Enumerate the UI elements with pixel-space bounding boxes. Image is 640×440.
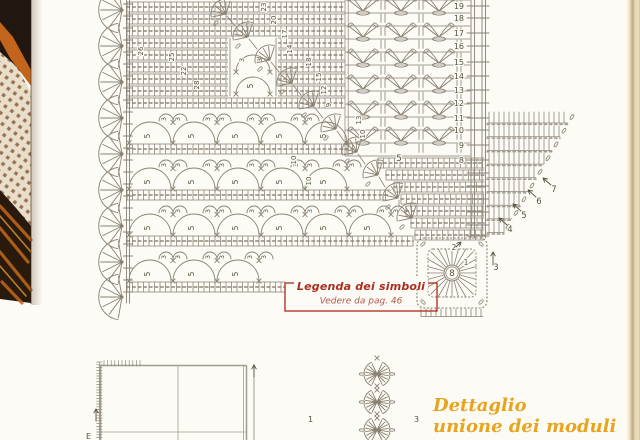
photo-shadow [32, 0, 43, 305]
arc-5 [349, 214, 391, 235]
arc-5-count: 5 [187, 271, 196, 276]
arc-3-count: 3 [204, 163, 212, 167]
row-number: 19 [454, 2, 464, 11]
round-arrow-number: 4 [507, 225, 512, 235]
arc-5 [129, 122, 171, 143]
chain-oval [385, 126, 391, 131]
arc-3-count: 3 [292, 209, 300, 213]
detail-caption-line1: Dettaglio [432, 395, 527, 416]
v-stitch [426, 0, 452, 11]
round-number: 2 [452, 243, 457, 252]
row-count-number: 22 [180, 67, 188, 76]
arc-3-count: 3 [292, 117, 300, 121]
row-count-number: 10 [359, 130, 367, 139]
arc-5-count: 5 [187, 179, 196, 184]
photo-strip [0, 0, 43, 305]
arc-3-count: 3 [336, 209, 344, 213]
fan-pivot [120, 224, 123, 227]
row-number: 10 [454, 126, 464, 135]
fan-pivot [120, 295, 123, 298]
arc-5-count: 5 [275, 225, 284, 230]
arc-5 [173, 168, 215, 189]
round-arrow-number: 7 [551, 185, 556, 195]
arc-3-count: 3 [378, 209, 386, 213]
chain-oval [529, 183, 534, 189]
row-count-number: 10 [290, 156, 298, 165]
chain-oval [373, 48, 379, 53]
module-label-1: 1 [308, 415, 313, 424]
arc-5-count: 5 [143, 225, 152, 230]
arc-5 [217, 214, 259, 235]
comb-row [487, 112, 568, 123]
row-number: 17 [454, 29, 464, 38]
chain-oval [423, 100, 429, 105]
chain-oval [373, 74, 379, 79]
crochet-chart: 3355555533333333555553333333333555555333… [99, 0, 575, 320]
module-leaf [377, 362, 390, 374]
chain-oval [569, 114, 574, 120]
page-edge [626, 0, 640, 440]
comb-row [487, 181, 528, 192]
fan-pivot [120, 80, 123, 83]
arc-3-count: 3 [246, 255, 254, 259]
fan-pivot [120, 188, 123, 191]
arc-5 [129, 214, 171, 235]
row-number: 18 [454, 14, 464, 23]
arc-3-count: 3 [160, 117, 168, 121]
row-number: 8 [459, 156, 464, 165]
chain-oval [449, 22, 455, 27]
chain-oval [553, 141, 558, 147]
row-count-number: 20 [270, 16, 278, 25]
x-stitch [375, 412, 379, 416]
round-number: 1 [464, 258, 469, 267]
row-count-number: 26 [137, 46, 145, 55]
arc-3-count: 3 [204, 117, 212, 121]
chain-oval [513, 210, 518, 216]
row-count-number: 9 [325, 103, 333, 107]
chain-oval [411, 74, 417, 79]
fan-pivot [120, 8, 123, 11]
row-count-number: 12 [320, 86, 328, 95]
arc-3-count: 3 [160, 209, 168, 213]
arc-5-count: 5 [319, 179, 328, 184]
arc-5 [217, 260, 259, 281]
chain-oval [561, 128, 566, 134]
arc-5 [129, 168, 171, 189]
arc-5-count: 5 [231, 179, 240, 184]
chain-oval [411, 48, 417, 53]
chain-oval [359, 373, 365, 375]
chain-oval [213, 20, 219, 26]
chain-oval [423, 48, 429, 53]
comb-row [487, 208, 512, 219]
chain-oval [373, 22, 379, 27]
arc-5-count: 5 [246, 83, 255, 88]
arc-5 [261, 214, 303, 235]
arc-5-count: 5 [319, 225, 328, 230]
comb-row [487, 194, 520, 205]
arc-5-count: 5 [187, 225, 196, 230]
module-leaf [377, 430, 390, 440]
chain-oval [373, 126, 379, 131]
staircase-rail [337, 131, 344, 141]
round-arrow-number: 5 [521, 211, 526, 221]
legend-title: Legenda dei simboli [297, 280, 425, 293]
arc-3-count: 3 [334, 163, 342, 167]
fan-pivot [120, 116, 123, 119]
legend-box: Legenda dei simboli Vedere da pag. 46 [285, 278, 437, 312]
row-number: 14 [454, 72, 464, 81]
chain-oval [399, 224, 405, 230]
x-stitch [375, 416, 379, 420]
chain-oval [385, 22, 391, 27]
arc-5 [261, 122, 303, 143]
staircase-rail [379, 177, 385, 187]
chain-oval [411, 126, 417, 131]
row-count-number: 14 [286, 44, 294, 53]
arc-3-count: 3 [204, 209, 212, 213]
arc-5-count: 5 [187, 133, 196, 138]
module-leaf [364, 362, 377, 374]
staircase-rail [227, 16, 235, 26]
magazine-page: 3355555533333333555553333333333555555333… [0, 0, 640, 440]
chain-oval [389, 401, 395, 403]
x-stitch [375, 356, 379, 360]
arc-5 [305, 214, 347, 235]
motif-center-count: 8 [449, 269, 455, 279]
motif-fringe [421, 309, 483, 317]
arc-5-count: 5 [275, 133, 284, 138]
comb-row [487, 167, 536, 178]
fan-pivot [120, 44, 123, 47]
chain-oval [389, 429, 395, 431]
fan-pivot [120, 260, 123, 263]
round-arrow-number: 6 [536, 197, 541, 207]
row-number: 13 [454, 86, 464, 95]
arc-5 [173, 122, 215, 143]
row-count-number: 10 [305, 177, 313, 186]
arc-5-count: 5 [143, 271, 152, 276]
chain-oval [389, 373, 395, 375]
module-leaf [364, 430, 377, 440]
chain-oval [521, 196, 526, 202]
chain-oval [365, 181, 371, 187]
chain-oval [537, 169, 542, 175]
chain-oval [279, 89, 285, 95]
left-rail [124, 0, 133, 303]
arc-5-count: 5 [231, 271, 240, 276]
x-stitch [375, 384, 379, 388]
module-label-3: 3 [414, 415, 419, 424]
arc-5 [129, 260, 171, 281]
chain-oval [478, 299, 484, 305]
comb-row [487, 126, 560, 137]
row-count-number: 17 [281, 30, 289, 39]
chain-oval [385, 100, 391, 105]
row-count-number: 18 [305, 58, 313, 67]
v-stitch [388, 0, 414, 11]
round-arrow-number: 3 [493, 263, 498, 273]
staircase-rail [315, 108, 323, 118]
arc-5-count: 5 [363, 225, 372, 230]
chain-oval [423, 126, 429, 131]
generated-diagram: 3355555533333333555553333333333555555333… [0, 0, 640, 440]
chain-oval [420, 299, 426, 305]
arc-3-count: 3 [204, 255, 212, 259]
chain-oval [359, 429, 365, 431]
chain-oval [420, 241, 426, 247]
comb-row [487, 153, 544, 164]
arc-5-count: 5 [275, 179, 284, 184]
arc-5 [217, 122, 259, 143]
round-arrow [456, 242, 461, 247]
chain-oval [373, 100, 379, 105]
row-number: 11 [454, 114, 464, 123]
chain-oval [359, 401, 365, 403]
row-number: 16 [454, 42, 464, 51]
dimension-arrow-top [252, 365, 256, 377]
arc-3-count: 3 [160, 163, 168, 167]
arc-3-count: 3 [238, 58, 246, 62]
chain-oval [411, 100, 417, 105]
row-number: 9 [459, 141, 464, 150]
module-diagram [94, 356, 395, 440]
row-count-number: 25 [168, 53, 176, 62]
row-count-number: 13 [355, 116, 363, 125]
arc-5 [261, 168, 303, 189]
row-number: 15 [454, 58, 464, 67]
row-number: 12 [454, 99, 464, 108]
module-label-e: E [86, 432, 91, 440]
x-stitch [375, 388, 379, 392]
v-stitch [350, 0, 376, 11]
arc-5-count: 5 [143, 133, 152, 138]
arc-5 [173, 260, 215, 281]
module-grid-outer [101, 366, 247, 440]
arc-5-count: 5 [143, 179, 152, 184]
row-count-number: 23 [260, 3, 268, 12]
row-count-number: 15 [315, 73, 323, 82]
crochet-pattern-scan: 3355555533333333555553333333333555555333… [0, 0, 640, 440]
fan-pivot [120, 152, 123, 155]
chain-oval [545, 155, 550, 161]
staircase-shell [321, 114, 341, 132]
chain-oval [423, 74, 429, 79]
arc-5-count: 5 [231, 225, 240, 230]
comb-row [487, 222, 504, 233]
arc-5-count: 5 [231, 133, 240, 138]
chain-oval [385, 48, 391, 53]
arc-3-count: 3 [248, 209, 256, 213]
chain-oval [385, 74, 391, 79]
round-arrow [528, 190, 536, 197]
comb-row [487, 139, 552, 150]
chain-oval [478, 241, 484, 247]
legend-subtitle: Vedere da pag. 46 [320, 297, 403, 307]
arc-3-count: 3 [160, 255, 168, 259]
chain-oval [423, 22, 429, 27]
stitch-count-number: 5 [396, 154, 402, 164]
arc-5 [217, 168, 259, 189]
arc-5 [173, 214, 215, 235]
page-edge-strip [626, 0, 640, 440]
arc-3-count: 3 [248, 117, 256, 121]
arc-3-count: 3 [248, 163, 256, 167]
staircase-rail [293, 85, 301, 95]
row-count-number: 28 [193, 81, 201, 90]
round-arrow [543, 178, 551, 185]
detail-caption-line2: unione dei moduli [433, 416, 617, 437]
chain-oval [411, 22, 417, 27]
